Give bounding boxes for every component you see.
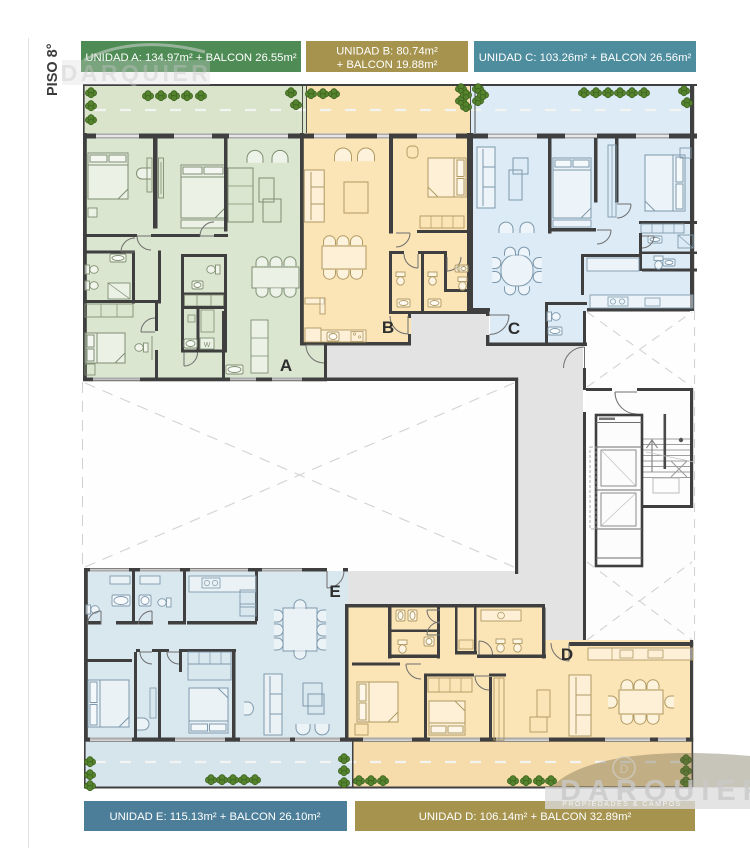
svg-text:PROPIEDADES & CAMPOS: PROPIEDADES & CAMPOS (562, 801, 681, 808)
svg-text:D: D (561, 645, 573, 664)
svg-text:UNIDAD D: 106.14m² + BALCON 32: UNIDAD D: 106.14m² + BALCON 32.89m² (419, 811, 632, 823)
svg-text:+ BALCON 19.88m²: + BALCON 19.88m² (337, 59, 438, 71)
svg-text:DARQUIER: DARQUIER (61, 60, 212, 86)
svg-text:D: D (620, 762, 629, 776)
svg-text:UNIDAD E: 115.13m² + BALCON 26: UNIDAD E: 115.13m² + BALCON 26.10m² (109, 811, 320, 823)
svg-text:PISO 8°: PISO 8° (45, 43, 61, 96)
svg-text:W: W (204, 342, 211, 349)
svg-text:UNIDAD C: 103.26m² + BALCON 26: UNIDAD C: 103.26m² + BALCON 26.56m² (479, 52, 692, 64)
svg-text:C: C (508, 319, 520, 338)
svg-text:B: B (382, 318, 394, 337)
svg-text:A: A (280, 356, 292, 375)
svg-text:UNIDAD B: 80.74m²: UNIDAD B: 80.74m² (336, 46, 438, 58)
svg-text:E: E (329, 582, 340, 601)
